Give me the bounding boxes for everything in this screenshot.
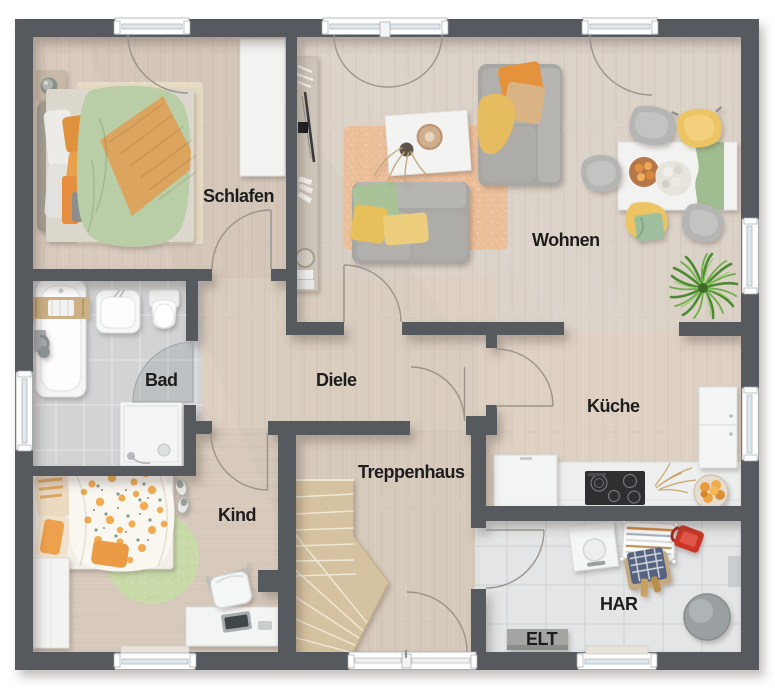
svg-text:HAR: HAR bbox=[600, 594, 638, 614]
svg-text:Bad: Bad bbox=[145, 370, 178, 390]
svg-text:Treppenhaus: Treppenhaus bbox=[358, 462, 465, 482]
svg-text:Schlafen: Schlafen bbox=[203, 186, 274, 206]
svg-text:Kind: Kind bbox=[218, 505, 256, 525]
svg-text:Wohnen: Wohnen bbox=[532, 230, 600, 250]
svg-text:Küche: Küche bbox=[587, 396, 640, 416]
svg-text:ELT: ELT bbox=[526, 629, 558, 649]
svg-text:Diele: Diele bbox=[316, 370, 357, 390]
